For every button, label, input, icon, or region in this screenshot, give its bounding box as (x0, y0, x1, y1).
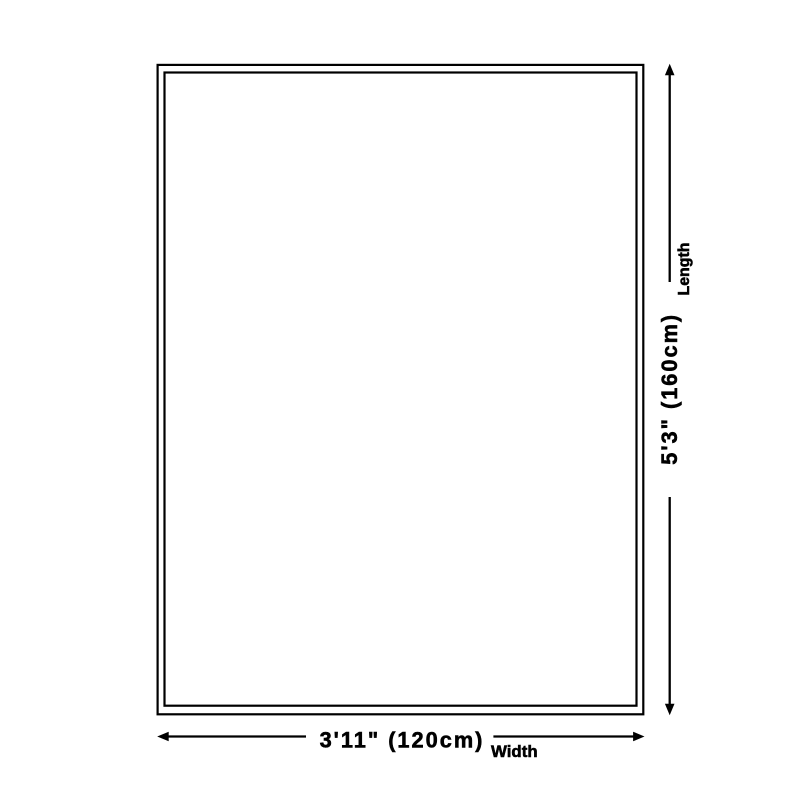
svg-text:5'3" (160cm): 5'3" (160cm) (657, 313, 682, 465)
svg-text:Width: Width (491, 742, 538, 761)
svg-text:Length: Length (676, 243, 693, 296)
svg-text:3'11" (120cm): 3'11" (120cm) (320, 728, 485, 753)
